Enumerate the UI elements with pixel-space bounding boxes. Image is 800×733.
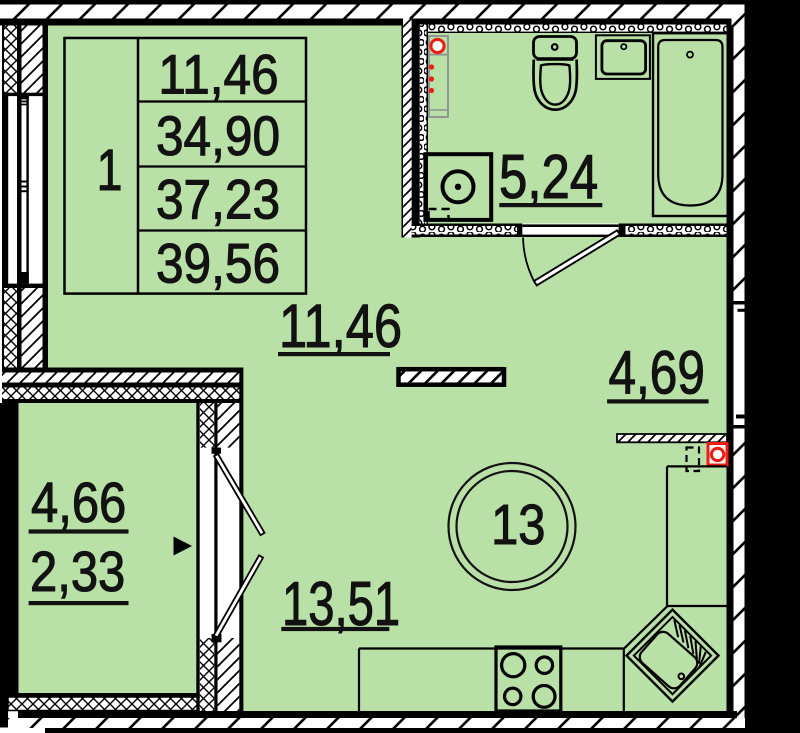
svg-text:13: 13: [491, 494, 545, 557]
svg-text:39,56: 39,56: [156, 233, 280, 295]
svg-text:11,46: 11,46: [158, 44, 278, 107]
svg-text:5,24: 5,24: [499, 143, 598, 212]
svg-text:4,66: 4,66: [31, 472, 126, 535]
svg-text:11,46: 11,46: [279, 292, 402, 361]
svg-text:34,90: 34,90: [156, 105, 280, 167]
svg-text:1: 1: [97, 138, 123, 203]
svg-text:4,69: 4,69: [609, 339, 705, 407]
svg-text:2,33: 2,33: [30, 540, 125, 603]
svg-text:37,23: 37,23: [156, 169, 280, 231]
